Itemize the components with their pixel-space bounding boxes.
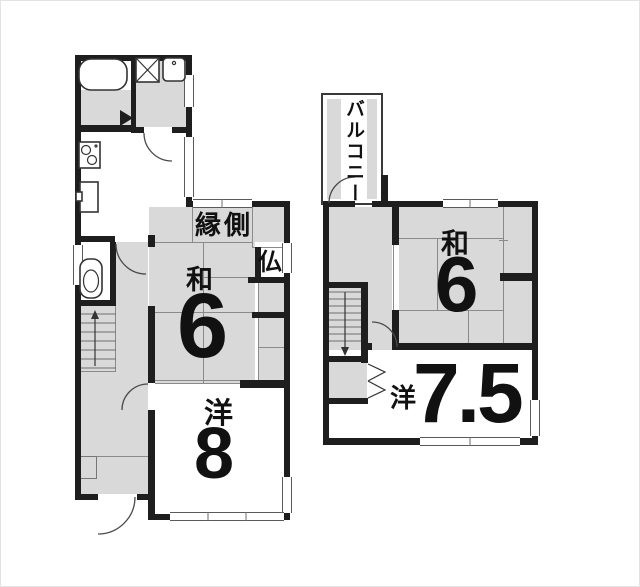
- floorplan: 縁側 仏 和 6 洋 8 バルコニー 和 6 洋 7.5: [0, 0, 640, 587]
- wall: [75, 236, 115, 242]
- window: [443, 199, 498, 208]
- door-arc: [144, 133, 172, 161]
- wall: [148, 235, 155, 247]
- bathroom-floor: [75, 90, 131, 125]
- wall: [392, 207, 399, 245]
- wall: [248, 277, 284, 283]
- stair-edge-line: [115, 306, 116, 372]
- closet-divider-line: [258, 347, 284, 348]
- wall: [329, 356, 368, 362]
- toilet-room-floor: [81, 242, 110, 300]
- window: [530, 400, 540, 436]
- wall: [329, 282, 361, 288]
- closet-floor-1f-b: [259, 318, 284, 380]
- wall: [75, 125, 136, 132]
- wall: [240, 380, 290, 388]
- wall: [131, 127, 144, 133]
- western-room-size-1f: 8: [194, 418, 233, 490]
- tatami-room-size-2f: 6: [435, 245, 477, 323]
- front-door-arc: [98, 497, 135, 534]
- wall: [110, 242, 116, 306]
- wall: [252, 312, 284, 318]
- engawa-divider-line: [192, 207, 193, 242]
- measure-tick: [499, 240, 508, 241]
- engawa-label: 縁側: [195, 212, 253, 238]
- partition-line: [155, 380, 240, 381]
- window: [282, 477, 292, 513]
- washroom-floor: [136, 61, 186, 127]
- wall: [148, 410, 155, 514]
- tatami-room-size-1f: 6: [177, 280, 227, 372]
- bifold-door-icon: [368, 364, 385, 398]
- window: [184, 75, 194, 107]
- stove-icon: [79, 142, 100, 168]
- engawa-edge-line: [149, 242, 252, 243]
- wall: [75, 494, 98, 500]
- genkan-step-line: [97, 456, 148, 457]
- closet-front-line: [258, 283, 259, 380]
- window: [73, 245, 83, 285]
- wall: [131, 55, 136, 131]
- wall: [381, 175, 388, 202]
- western-room-size-2f: 7.5: [413, 351, 521, 435]
- wall: [323, 201, 329, 445]
- wall: [75, 300, 116, 306]
- butsudan-label: 仏: [258, 251, 282, 275]
- balcony-label: バルコニー: [344, 99, 363, 204]
- shoe-cabinet: [79, 456, 97, 479]
- closet-floor-2f: [329, 362, 367, 398]
- wall: [148, 306, 155, 383]
- wall: [329, 398, 368, 404]
- closet-floor-1f-a: [259, 283, 284, 312]
- window: [282, 243, 292, 273]
- wall: [172, 127, 192, 133]
- window: [184, 137, 194, 197]
- wall: [361, 282, 368, 363]
- stair-edge-line: [81, 371, 116, 372]
- wall: [500, 273, 532, 281]
- bathtub-icon: [79, 59, 127, 90]
- closet-front-line: [393, 245, 394, 310]
- window: [170, 512, 284, 521]
- window: [193, 199, 252, 208]
- partition-line: [155, 383, 240, 384]
